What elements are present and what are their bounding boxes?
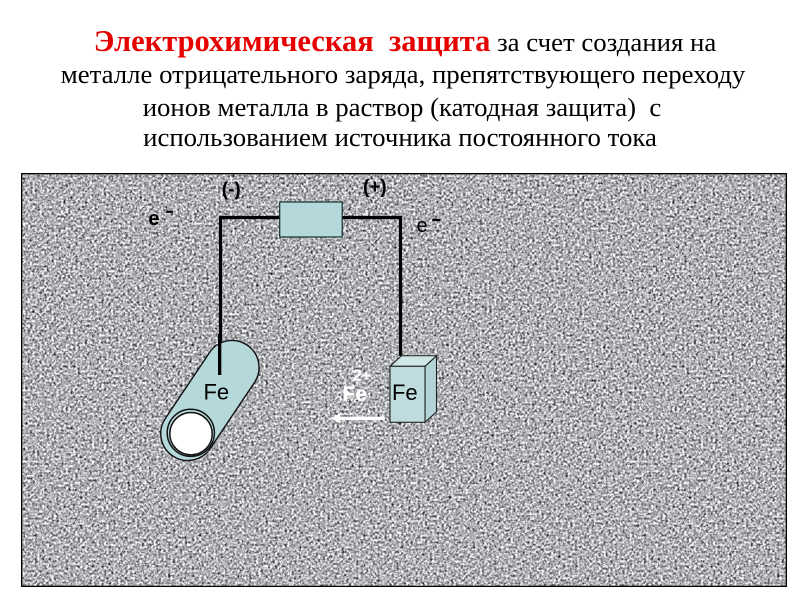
svg-text:Fe: Fe — [342, 383, 367, 406]
svg-text:2+: 2+ — [352, 368, 370, 385]
svg-text:(+): (+) — [363, 177, 387, 198]
svg-text:e: e — [148, 208, 159, 230]
svg-text:Fe: Fe — [392, 380, 418, 405]
svg-text:(-): (-) — [221, 179, 240, 200]
svg-text:Fe: Fe — [203, 379, 229, 404]
svg-text:e: e — [416, 215, 427, 237]
